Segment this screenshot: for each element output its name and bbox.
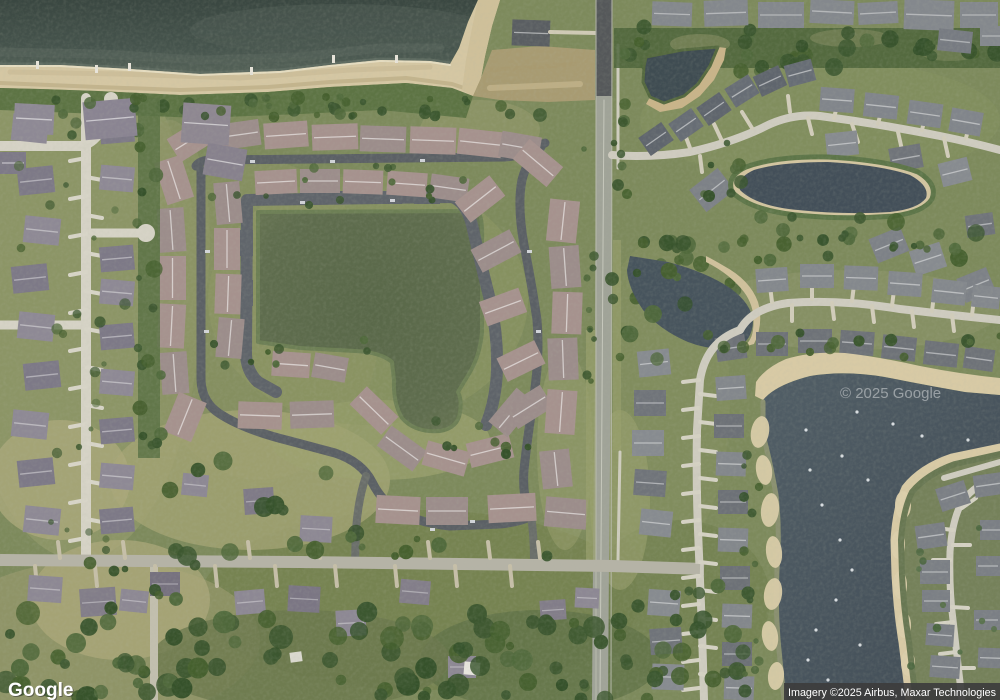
svg-text:Imagery ©2025 Airbus, Maxar Te: Imagery ©2025 Airbus, Maxar Technologies (788, 687, 996, 699)
svg-text:Google: Google (8, 680, 73, 700)
svg-text:© 2025 Google: © 2025 Google (840, 385, 941, 402)
